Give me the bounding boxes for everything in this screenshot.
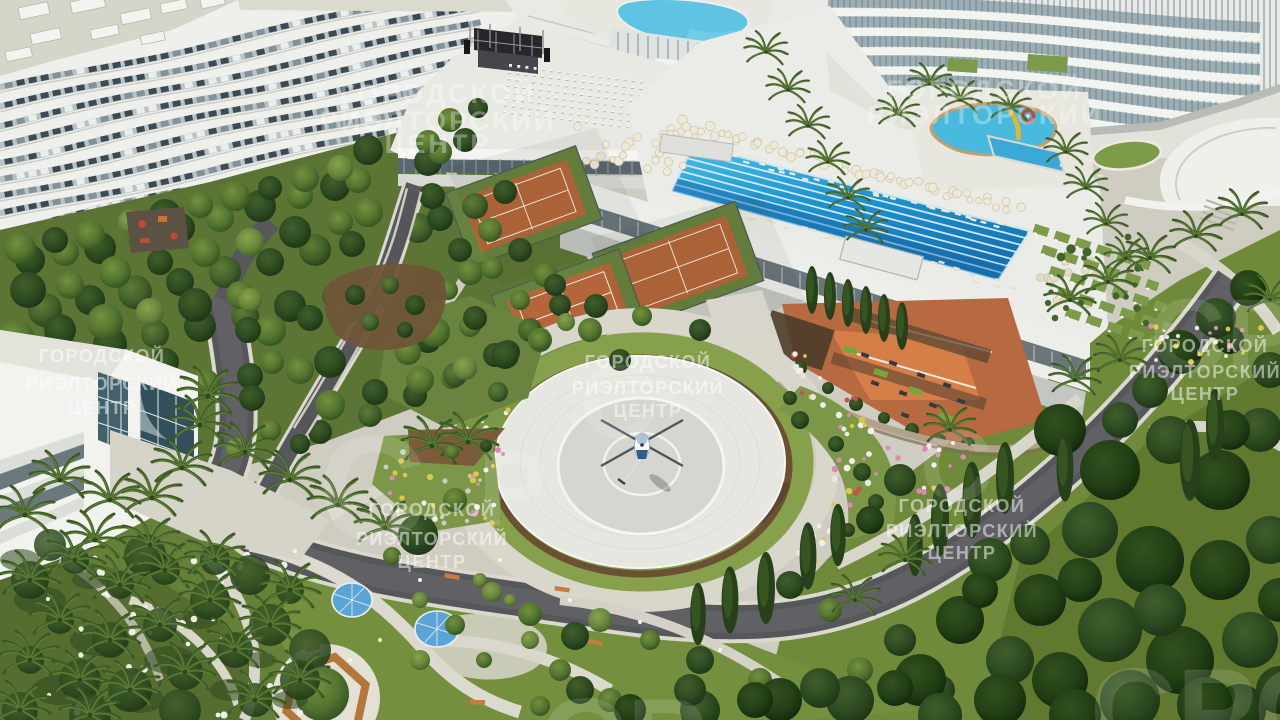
svg-text:РИЭЛТОРСКИЙ: РИЭЛТОРСКИЙ: [867, 99, 1104, 130]
svg-text:ЦЕНТР: ЦЕНТР: [928, 543, 997, 563]
svg-text:РИЭЛТОРСКИЙ: РИЭЛТОРСКИЙ: [886, 520, 1038, 541]
svg-text:ЦЕНТР: ЦЕНТР: [614, 401, 683, 421]
svg-text:ГОРОДСКОЙ: ГОРОДСКОЙ: [899, 495, 1026, 516]
svg-text:ЦЕНТР: ЦЕНТР: [398, 552, 467, 572]
svg-text:СРС: СРС: [1090, 644, 1280, 720]
svg-text:РИЭЛТОРСКИЙ: РИЭЛТОРСКИЙ: [356, 528, 508, 549]
svg-text:ГОРОДСКОЙ: ГОРОДСКОЙ: [585, 351, 712, 372]
svg-text:РИЭЛТОРСКИЙ: РИЭЛТОРСКИЙ: [1129, 361, 1280, 382]
svg-text:ГОРОДСКОЙ: ГОРОДСКОЙ: [39, 345, 166, 366]
svg-text:ГОРОДСКОЙ: ГОРОДСКОЙ: [369, 499, 496, 520]
svg-text:ЦЕНТР: ЦЕНТР: [385, 129, 492, 159]
svg-text:ЦЕНТР: ЦЕНТР: [68, 398, 137, 418]
svg-text:РИЭЛТОРСКИЙ: РИЭЛТОРСКИЙ: [572, 377, 724, 398]
svg-text:СР: СР: [540, 674, 707, 720]
svg-text:ЦЕНТР: ЦЕНТР: [1171, 384, 1240, 404]
svg-text:РИЭЛТОРСКИЙ: РИЭЛТОРСКИЙ: [26, 373, 178, 394]
svg-text:ГОРОДСКОЙ: ГОРОДСКОЙ: [1142, 335, 1269, 356]
svg-text:ГОРОДСКОЙ: ГОРОДСКОЙ: [340, 78, 537, 109]
